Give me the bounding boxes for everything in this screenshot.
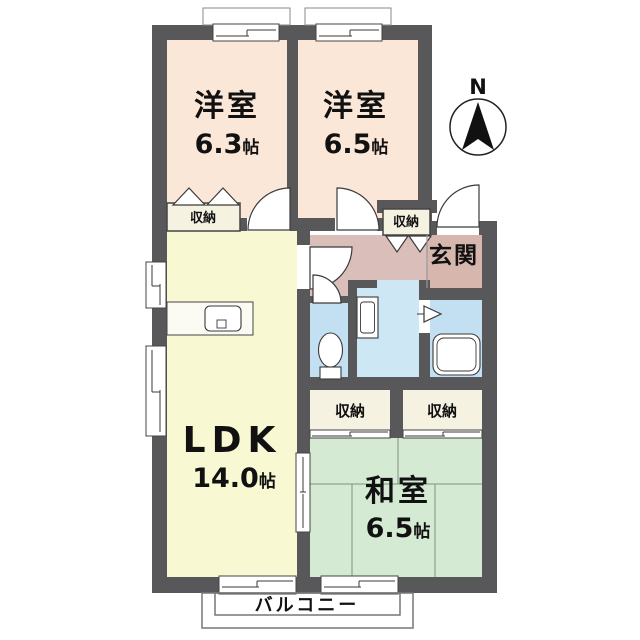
washing-machine-icon: [357, 297, 378, 338]
ldk-door-opening: [297, 245, 310, 289]
closet-left-sliding-door-icon: [310, 430, 390, 438]
wall-right: [482, 221, 497, 593]
floor-plan-page: バルコニー 洋室 6.3帖 洋室 6.5帖 玄関 収納 収納 収納 収納 LDK…: [0, 0, 640, 640]
wall-left: [152, 25, 167, 593]
ldk-left-window-upper-icon: [146, 262, 166, 308]
ldk-floor: [167, 231, 297, 577]
ldk-balcony-window-icon: [219, 576, 296, 594]
bedroom1-closet-label: 収納: [190, 210, 216, 226]
wall-entrance-bottom: [427, 288, 482, 300]
bedroom1-label: 洋室: [194, 89, 260, 124]
north-label: N: [469, 75, 487, 99]
compass: N: [450, 75, 506, 155]
japanese-room-sliding-door-icon: [296, 453, 310, 532]
japanese-room-balcony-window-icon: [321, 576, 398, 594]
kitchen-counter: [167, 302, 253, 335]
entrance-label: 玄関: [429, 242, 479, 269]
bedroom2-window-icon: [316, 24, 382, 41]
bedroom1-window-icon: [213, 24, 279, 41]
bedroom2-window-eave: [305, 8, 391, 25]
closet-right-label: 収納: [427, 402, 457, 420]
ldk-left-window-lower-icon: [146, 346, 166, 436]
toilet-icon: [319, 333, 343, 379]
wall-closet-divider: [390, 390, 403, 438]
closet-left-label: 収納: [335, 402, 365, 420]
balcony-label: バルコニー: [255, 595, 360, 616]
wall-top: [152, 25, 432, 40]
balcony: バルコニー: [202, 593, 413, 628]
bedroom1-window-eave: [203, 8, 290, 25]
kitchen-sink-icon: [205, 306, 241, 331]
washroom-door-opening: [377, 280, 419, 288]
entrance-door-swing-icon: [437, 185, 479, 227]
japanese-room-label: 和室: [365, 474, 431, 509]
hall-closet-label: 収納: [393, 214, 419, 230]
ldk-label: LDK: [183, 420, 282, 461]
bedroom2-label: 洋室: [323, 89, 389, 124]
wall-toilet-washroom: [348, 288, 357, 380]
bathtub-icon: [433, 334, 480, 375]
floor-plan: バルコニー 洋室 6.3帖 洋室 6.5帖 玄関 収納 収納 収納 収納 LDK…: [0, 0, 640, 640]
closet-right-sliding-door-icon: [403, 430, 482, 438]
